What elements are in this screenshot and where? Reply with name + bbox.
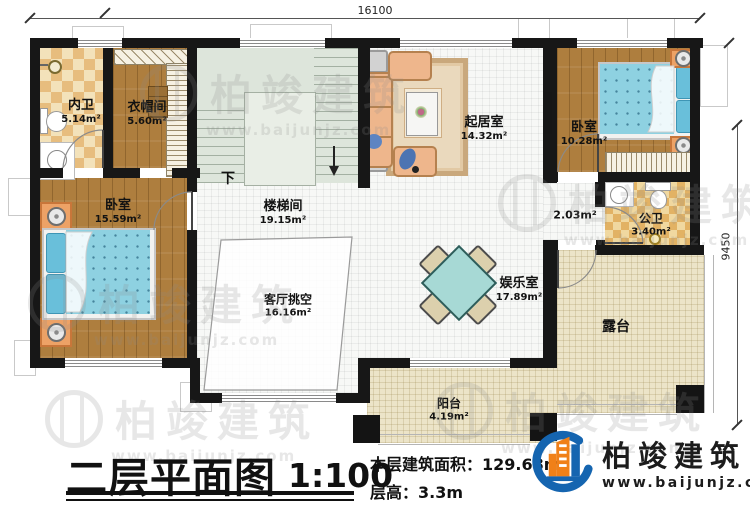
window [78,38,122,48]
window [65,358,162,368]
window [577,38,667,48]
roof-outline [8,178,32,216]
toilet-icon [650,190,667,209]
dimension-tick [723,37,734,48]
wall [595,245,704,255]
wardrobe [605,152,692,174]
brand-logo-icon [528,430,594,502]
room-label-bedroom-right: 卧室 10.28m² [561,121,607,147]
wall [595,182,605,207]
dimension-line-top [30,18,700,19]
wall [543,250,557,368]
room-label-recreation: 娱乐室 17.89m² [496,277,542,303]
wall [187,230,197,368]
dimension-right: 9450 [720,233,733,261]
wall [187,48,197,178]
bed [600,64,674,134]
pillar [353,415,380,443]
lamp-icon [47,323,66,342]
wall [103,48,113,168]
wall [187,178,197,192]
pillow [46,274,66,314]
brand-website: www.baijunjz.com [602,475,750,491]
brand-name: 柏竣建筑 [602,442,750,471]
terrace-railing [704,255,714,413]
wall [30,168,63,178]
wardrobe-side [166,63,188,177]
room-label-inner-bath: 内卫 5.14m² [61,99,100,125]
room-label-balcony: 阳台 4.19m² [429,397,468,422]
wall [543,172,558,182]
wall [690,38,700,255]
title-underline [66,499,354,501]
decor-dot [412,166,419,173]
wall [122,38,240,48]
roof-outline [700,45,728,107]
stair-down-label: 下 [221,171,235,187]
wall [598,172,700,182]
room-label-cloakroom: 衣帽间 5.60m² [127,101,166,127]
wall [336,393,360,403]
room-label-terrace: 露台 [602,319,630,335]
dimension-top: 16100 [340,4,410,17]
floor-terrace [557,250,595,413]
brand-logo: 柏竣建筑 www.baijunjz.com [528,430,750,502]
shower-head-icon [48,60,62,74]
tv-icon [544,92,552,134]
stairs-landing [244,92,316,186]
wall [162,358,200,368]
pillar [676,385,704,413]
pillow [46,233,66,273]
watermark-logo-icon [45,390,103,448]
stairs-right-flight [314,48,358,183]
dimension-tick [99,7,110,18]
roof-outline [518,18,550,40]
window [222,393,336,403]
terrace-railing [557,404,677,415]
floor-living-zone [358,188,370,358]
table-decor [415,106,427,118]
dimension-line-right [737,125,738,425]
room-label-public-bath: 公卫 3.40m² [631,212,670,237]
window [410,358,510,368]
bed [66,230,150,314]
sink-icon [610,186,628,204]
wall [30,38,40,368]
wall [30,358,65,368]
floor-area-label: 本层建筑面积： [370,455,482,474]
floor-plan-page: 内卫 5.14m² 衣帽间 5.60m² 卧室 15.59m² 楼梯间 19.1… [0,0,750,507]
room-label-void: 客厅挑空 16.16m² [264,293,312,318]
window [240,38,325,48]
wall [195,393,222,403]
window [400,38,512,48]
wall [103,168,140,178]
roof-outline [627,18,675,40]
room-label-bedroom-left: 卧室 15.59m² [95,199,141,225]
wall [358,38,370,188]
wall [358,358,370,403]
sink-icon [47,150,67,170]
armchair [388,51,432,81]
wall [543,240,558,250]
balcony-railing [378,434,530,445]
room-label-hall-area: 2.03m² [553,210,596,223]
floor-height-line: 层高：3.3m [370,479,463,503]
title-underline [66,491,354,495]
page-title: 二层平面图 [66,444,276,504]
room-label-living: 起居室 14.32m² [461,116,507,142]
wall [370,358,410,368]
lamp-icon [47,207,66,226]
room-label-stairwell: 楼梯间 19.15m² [260,200,306,226]
